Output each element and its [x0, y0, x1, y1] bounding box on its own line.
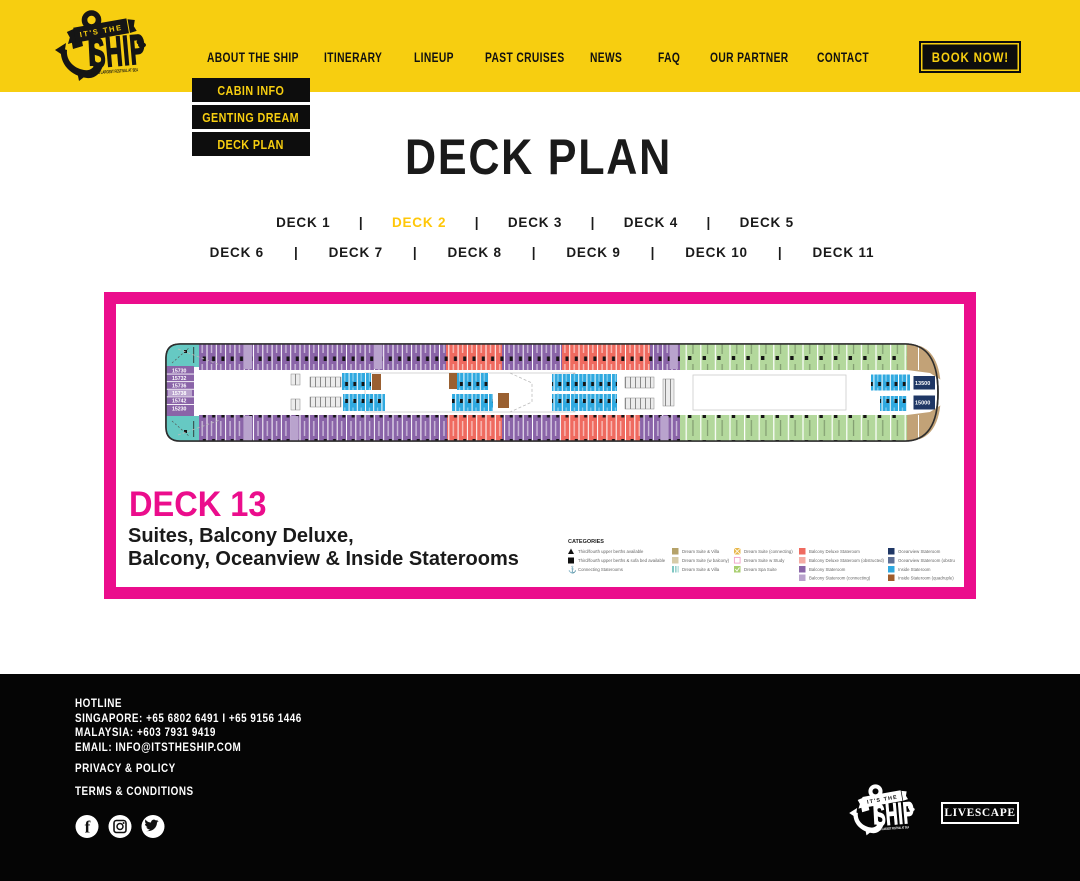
svg-text:Connecting Staterooms: Connecting Staterooms	[578, 567, 623, 572]
svg-text:15736: 15736	[172, 384, 187, 390]
svg-text:15730: 15730	[172, 368, 187, 374]
svg-text:Dream Suite (w balcony): Dream Suite (w balcony)	[682, 558, 730, 563]
svg-text:Dream Suite & Villa: Dream Suite & Villa	[682, 549, 720, 554]
svg-text:15738: 15738	[172, 391, 187, 397]
svg-text:Oceanview Stateroom (obstructe: Oceanview Stateroom (obstructed)	[898, 558, 955, 563]
svg-text:Balcony Deluxe Stateroom: Balcony Deluxe Stateroom	[809, 549, 860, 554]
svg-text:Dream Spa Suite: Dream Spa Suite	[744, 567, 777, 572]
svg-text:15732: 15732	[172, 376, 187, 382]
svg-text:Third/fourth upper berths & so: Third/fourth upper berths & sofa bed ava…	[578, 558, 666, 563]
svg-text:Dream Suite w Study: Dream Suite w Study	[744, 558, 785, 563]
svg-text:CATEGORIES: CATEGORIES	[568, 539, 604, 545]
svg-text:Balcony Deluxe Stateroom (obst: Balcony Deluxe Stateroom (obstructed)	[809, 558, 885, 563]
svg-text:Dream Suite (connecting): Dream Suite (connecting)	[744, 549, 793, 554]
svg-text:Balcony Stateroom: Balcony Stateroom	[809, 567, 846, 572]
svg-text:Inside Stateroom: Inside Stateroom	[898, 567, 931, 572]
svg-text:Dream Suite & Villa: Dream Suite & Villa	[682, 567, 720, 572]
svg-text:13500: 13500	[915, 381, 930, 387]
svg-text:Oceanview Stateroom: Oceanview Stateroom	[898, 549, 941, 554]
svg-text:Balcony Stateroom (connecting): Balcony Stateroom (connecting)	[809, 576, 871, 581]
svg-text:15000: 15000	[915, 401, 930, 407]
svg-text:Third/fourth upper berths avai: Third/fourth upper berths available	[578, 549, 644, 554]
svg-text:⚓: ⚓	[568, 565, 577, 574]
svg-text:f: f	[85, 818, 91, 837]
svg-text:Inside Stateroom (quadruple): Inside Stateroom (quadruple)	[898, 576, 954, 581]
svg-text:15742: 15742	[172, 399, 187, 405]
svg-text:15230: 15230	[172, 406, 187, 412]
